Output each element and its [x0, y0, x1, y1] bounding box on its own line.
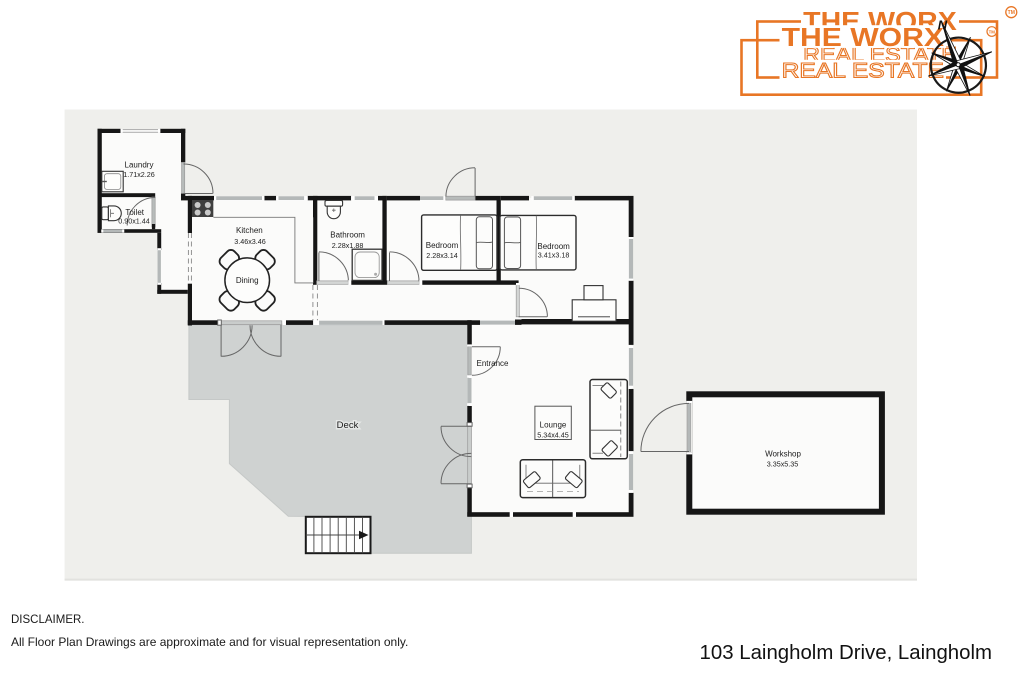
svg-text:THE WORX: THE WORX — [782, 24, 944, 52]
svg-text:5.34x4.45: 5.34x4.45 — [537, 431, 569, 440]
svg-text:TM: TM — [989, 29, 996, 34]
svg-text:2.28x3.14: 2.28x3.14 — [426, 251, 458, 260]
svg-text:Toilet: Toilet — [125, 208, 144, 217]
svg-text:3.46x3.46: 3.46x3.46 — [234, 237, 266, 246]
svg-text:Deck: Deck — [337, 420, 359, 431]
svg-text:1.71x2.26: 1.71x2.26 — [123, 170, 155, 179]
svg-text:REAL ESTATE: REAL ESTATE — [782, 59, 944, 83]
svg-text:Bathroom: Bathroom — [330, 231, 365, 240]
svg-text:3.41x3.18: 3.41x3.18 — [538, 251, 570, 260]
svg-text:3.35x5.35: 3.35x5.35 — [767, 459, 799, 468]
svg-text:Workshop: Workshop — [765, 449, 801, 458]
svg-text:Bedroom: Bedroom — [426, 241, 459, 250]
svg-text:Entrance: Entrance — [476, 359, 509, 368]
svg-text:0.90x1.44: 0.90x1.44 — [118, 217, 150, 226]
svg-text:2.28x1.88: 2.28x1.88 — [332, 241, 364, 250]
svg-text:Laundry: Laundry — [125, 160, 154, 169]
svg-text:Dining: Dining — [236, 276, 259, 285]
svg-text:Bedroom: Bedroom — [537, 242, 570, 251]
svg-text:N: N — [938, 18, 948, 33]
svg-text:All Floor Plan Drawings are ap: All Floor Plan Drawings are approximate … — [11, 635, 408, 649]
svg-text:Lounge: Lounge — [540, 420, 567, 429]
svg-text:DISCLAIMER.: DISCLAIMER. — [11, 614, 85, 626]
svg-text:103 Laingholm Drive, Laingholm: 103 Laingholm Drive, Laingholm — [700, 642, 992, 664]
svg-text:TM: TM — [1008, 10, 1015, 16]
svg-text:Kitchen: Kitchen — [236, 226, 263, 235]
